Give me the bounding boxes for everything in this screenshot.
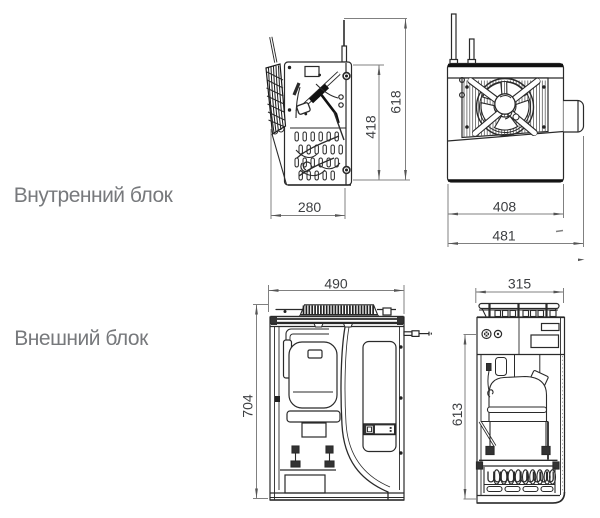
svg-text:481: 481 bbox=[492, 228, 516, 244]
svg-text:280: 280 bbox=[298, 199, 322, 215]
svg-text:315: 315 bbox=[508, 276, 532, 292]
svg-text:408: 408 bbox=[493, 199, 517, 215]
svg-text:613: 613 bbox=[449, 403, 465, 427]
svg-text:704: 704 bbox=[240, 394, 256, 418]
svg-text:618: 618 bbox=[388, 90, 404, 114]
svg-text:418: 418 bbox=[363, 115, 379, 139]
svg-text:490: 490 bbox=[324, 276, 348, 292]
